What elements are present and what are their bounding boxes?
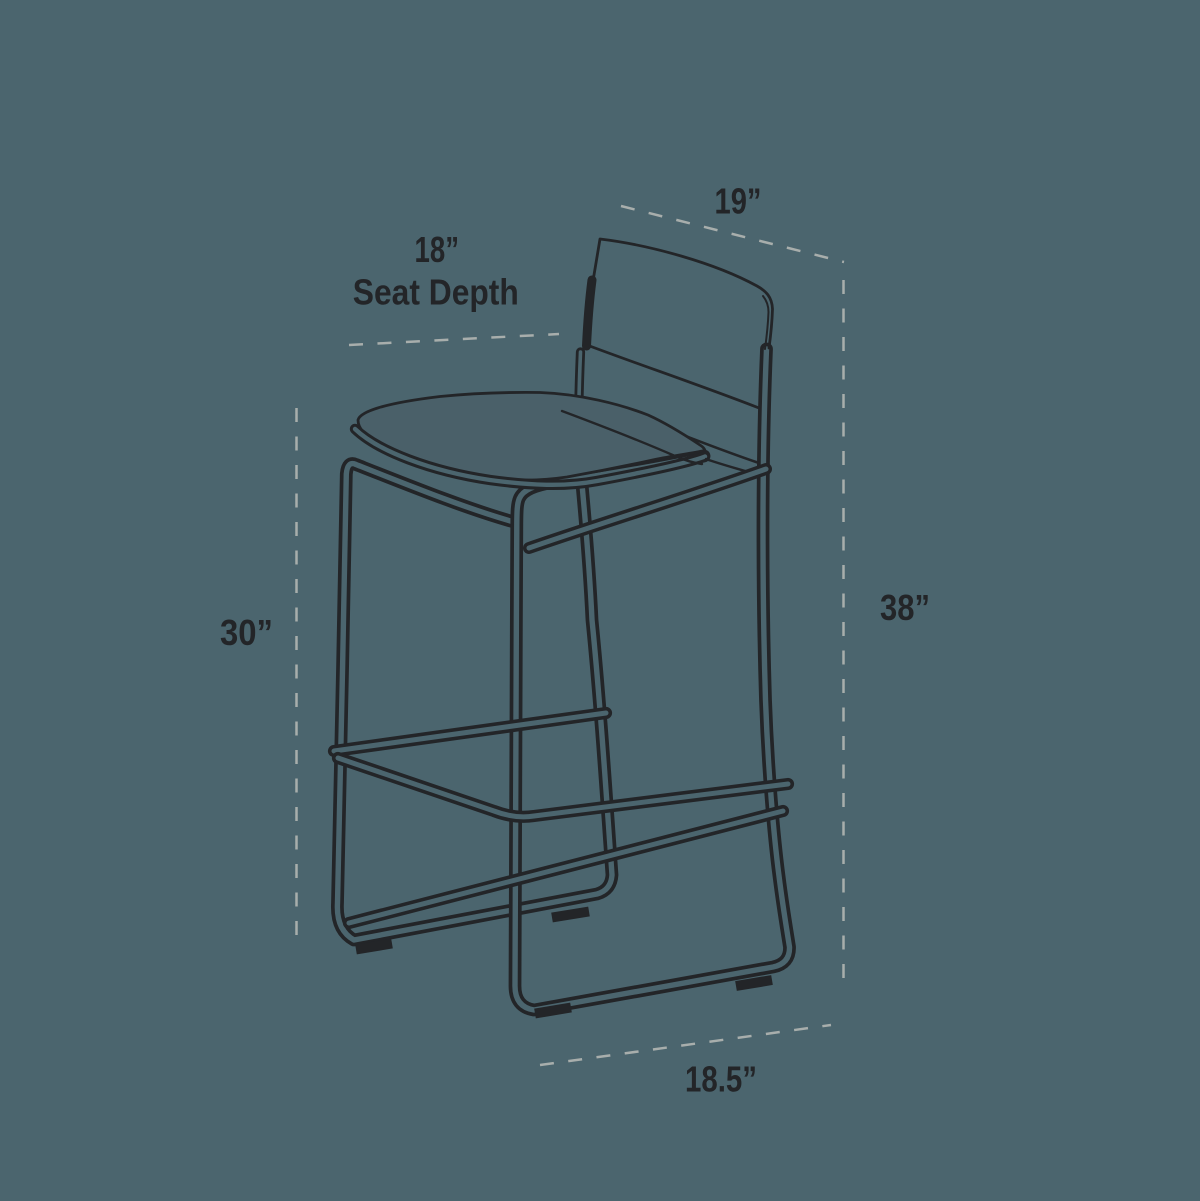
svg-text:19”: 19” — [715, 181, 762, 222]
svg-text:18.5”: 18.5” — [685, 1059, 757, 1100]
svg-text:38”: 38” — [880, 587, 930, 628]
svg-text:Seat Depth: Seat Depth — [353, 272, 519, 313]
svg-text:18”: 18” — [415, 229, 460, 270]
svg-text:30”: 30” — [220, 612, 273, 653]
